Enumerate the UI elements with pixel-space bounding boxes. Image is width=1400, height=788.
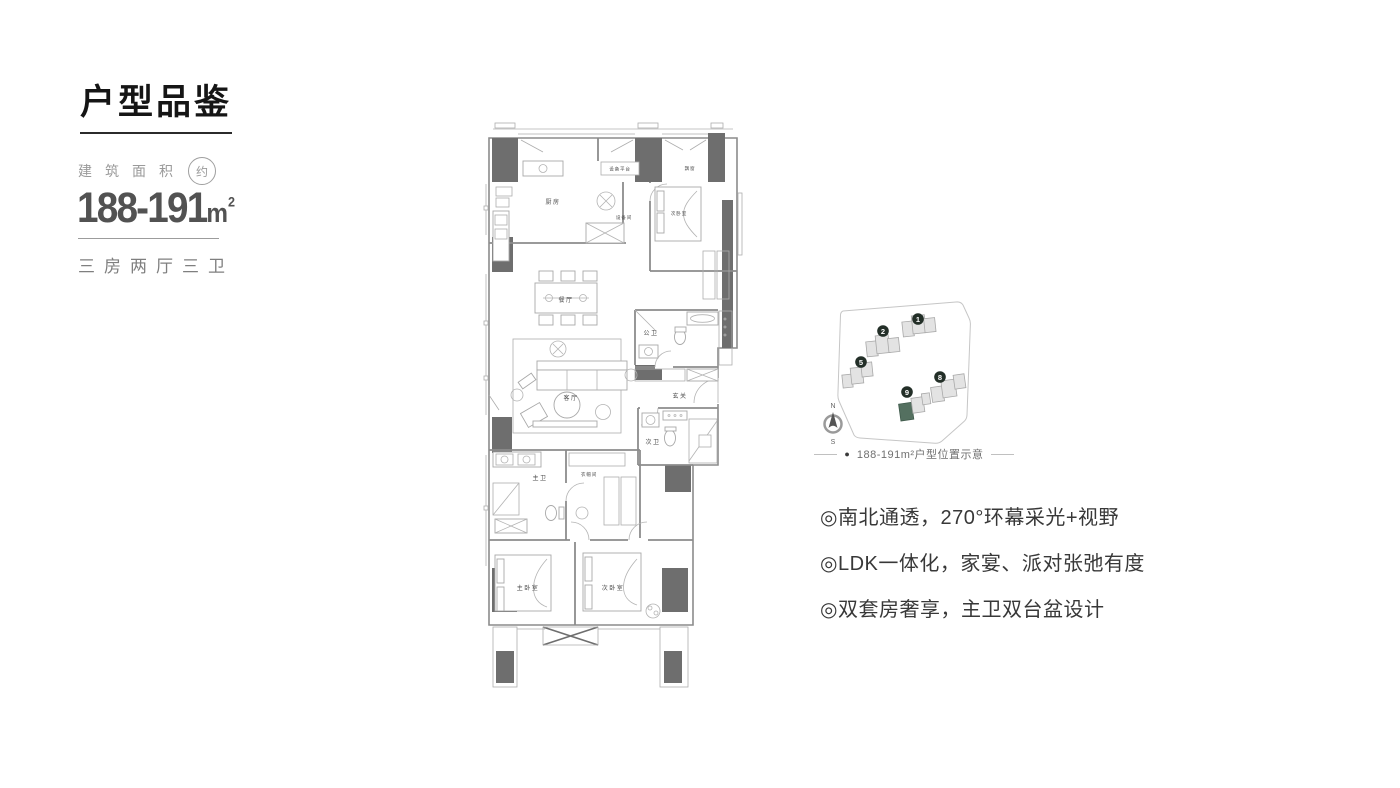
feature-item-1: ◎南北通透，270°环幕采光+视野 xyxy=(820,505,1145,532)
room-label-foyer: 玄关 xyxy=(672,392,687,400)
approx-circle-badge: 约 xyxy=(188,157,216,185)
compass-south-label: S xyxy=(831,439,836,446)
page-title: 户型品鉴 xyxy=(80,74,232,134)
compass-north-label: N xyxy=(830,403,835,410)
building-badge-5: 5 xyxy=(859,358,863,367)
feature-item-3: ◎双套房奢享，主卫双台盆设计 xyxy=(820,597,1145,624)
room-label-equipment-platform: 设备平台 xyxy=(609,166,631,173)
area-unit: m xyxy=(206,198,228,228)
site-plan-svg: 1 2 5 8 9 N S xyxy=(818,298,1008,448)
caption-right-line xyxy=(991,454,1014,455)
layout-text: 三房两厅三卫 xyxy=(78,252,234,277)
room-label-second-bath: 次卫 xyxy=(645,438,660,446)
area-number: 188-191 xyxy=(77,184,206,232)
area-value: 188-191m2 xyxy=(77,184,235,233)
room-label-equipment-room: 设备间 xyxy=(616,214,632,221)
site-plan-caption: ● 188-191m²户型位置示意 xyxy=(814,446,1014,462)
area-label: 建筑面积 xyxy=(78,161,186,181)
room-label-cloakroom: 衣帽间 xyxy=(581,471,597,478)
area-unit-sup: 2 xyxy=(228,194,235,210)
room-label-bedroom-top: 次卧室 xyxy=(671,210,687,217)
divider-line xyxy=(78,238,219,239)
feature-list: ◎南北通透，270°环幕采光+视野 ◎LDK一体化，家宴、派对张弛有度 ◎双套房… xyxy=(820,505,1145,643)
compass: N S xyxy=(825,403,842,446)
feature-item-2: ◎LDK一体化，家宴、派对张弛有度 xyxy=(820,551,1145,578)
building-badge-1: 1 xyxy=(916,315,920,324)
room-label-dining: 餐厅 xyxy=(558,296,573,304)
bottom-balcony xyxy=(493,627,688,687)
room-label-kitchen: 厨房 xyxy=(545,198,560,206)
floor-plan-svg: 厨房 设备平台 设备间 次卧室 飘窗 餐厅 客厅 公卫 玄关 次卫 主卫 衣帽间… xyxy=(483,121,745,693)
building-badge-9: 9 xyxy=(905,388,909,397)
area-label-row: 建筑面积 约 xyxy=(78,157,216,185)
room-label-public-bath: 公卫 xyxy=(643,330,658,337)
building-badge-2: 2 xyxy=(881,327,885,336)
room-label-bay-window: 飘窗 xyxy=(685,165,696,172)
caption-left-line xyxy=(814,454,837,455)
room-label-master-bath: 主卫 xyxy=(532,474,547,482)
caption-dot-icon: ● xyxy=(844,450,849,459)
caption-text: 188-191m²户型位置示意 xyxy=(857,446,984,462)
room-label-living: 客厅 xyxy=(563,394,578,402)
room-label-master-bedroom: 主卧室 xyxy=(517,584,540,592)
room-label-bedroom-bottom: 次卧室 xyxy=(602,584,625,592)
building-badge-8: 8 xyxy=(938,373,942,382)
page: 户型品鉴 建筑面积 约 188-191m2 三房两厅三卫 xyxy=(0,0,1400,788)
